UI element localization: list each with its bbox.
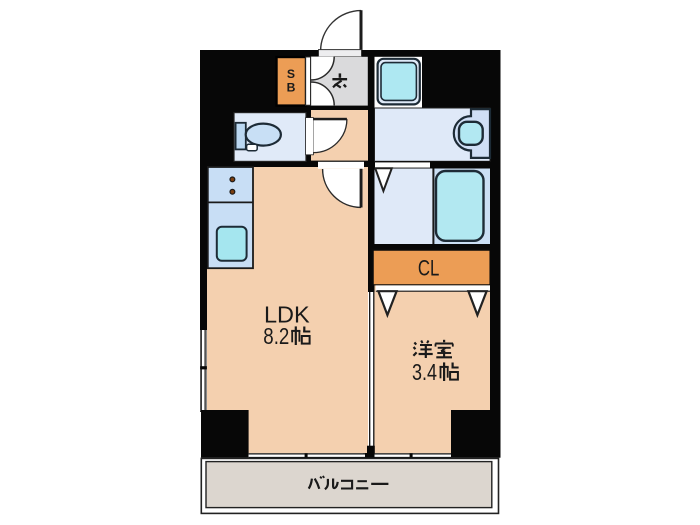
svg-text:3.4: 3.4 — [412, 359, 437, 385]
svg-text:S: S — [287, 67, 295, 81]
svg-text:B: B — [287, 81, 296, 95]
svg-text:CL: CL — [418, 255, 440, 280]
svg-text:8.2: 8.2 — [263, 323, 289, 349]
